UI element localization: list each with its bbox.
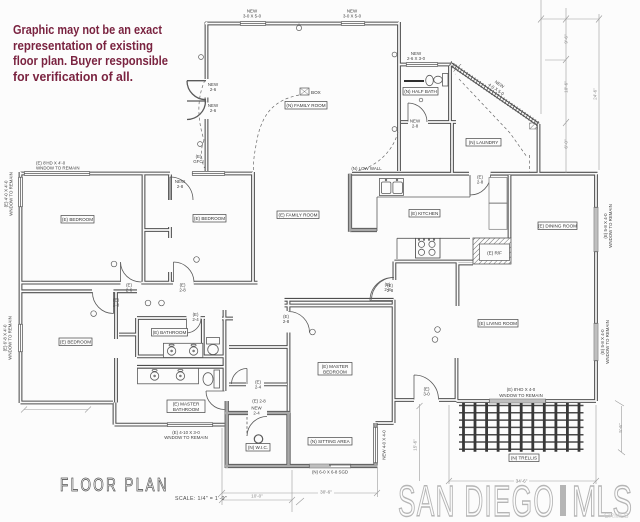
svg-text:2-6 X 3-0: 2-6 X 3-0 (407, 56, 426, 61)
svg-text:(E) MASTER: (E) MASTER (322, 364, 349, 369)
svg-text:(N) LAUNDRY: (N) LAUNDRY (469, 140, 499, 145)
svg-text:(E) 2-8: (E) 2-8 (252, 399, 266, 404)
svg-text:(E) FAMILY ROOM: (E) FAMILY ROOM (279, 213, 318, 218)
svg-text:for verification of all.: for verification of all. (13, 69, 133, 84)
svg-text:2-4: 2-4 (255, 385, 262, 390)
svg-text:Graphic may not be an exact: Graphic may not be an exact (13, 22, 163, 37)
svg-text:(E) MASTER: (E) MASTER (173, 401, 200, 406)
svg-text:2-4: 2-4 (253, 411, 260, 416)
svg-text:FLOOR PLAN: FLOOR PLAN (60, 475, 169, 495)
svg-text:GFCI: GFCI (193, 159, 204, 164)
svg-text:2-8: 2-8 (177, 184, 184, 189)
svg-text:2-8: 2-8 (283, 319, 290, 324)
svg-text:(E) LIVING ROOM: (E) LIVING ROOM (479, 321, 517, 326)
svg-text:WNDOW TO REMAIN: WNDOW TO REMAIN (36, 166, 80, 171)
svg-text:WNDOW TO REMAIN: WNDOW TO REMAIN (499, 393, 543, 398)
svg-text:5'-6": 5'-6" (618, 423, 623, 433)
svg-text:CRMLS: CRMLS (604, 513, 629, 520)
svg-text:WNDOW TO REMAIN: WNDOW TO REMAIN (8, 316, 13, 360)
svg-text:2-6: 2-6 (126, 288, 133, 293)
svg-text:WNDOW TO REMAIN: WNDOW TO REMAIN (164, 435, 208, 440)
svg-text:(E) BEDROOM: (E) BEDROOM (62, 217, 93, 222)
svg-text:(N) TRELLIS: (N) TRELLIS (511, 456, 537, 461)
svg-text:2-6: 2-6 (210, 87, 217, 92)
svg-text:9'-6": 9'-6" (564, 34, 569, 44)
svg-text:2-8: 2-8 (477, 180, 484, 185)
svg-text:3-0: 3-0 (423, 392, 430, 397)
svg-text:2-8: 2-8 (412, 124, 419, 129)
svg-text:(E) BATHROOM: (E) BATHROOM (153, 330, 187, 335)
svg-text:2-8: 2-8 (384, 287, 391, 292)
svg-text:24'-6": 24'-6" (593, 88, 598, 100)
svg-text:SAN DIEGO: SAN DIEGO (398, 477, 555, 522)
svg-text:3-0 X 5-0: 3-0 X 5-0 (243, 14, 262, 19)
svg-text:10'-0": 10'-0" (251, 494, 263, 499)
svg-text:(N) LOW WALL: (N) LOW WALL (351, 166, 382, 171)
svg-text:30'-6": 30'-6" (320, 490, 332, 495)
svg-text:2-4: 2-4 (192, 317, 199, 322)
svg-text:SCALE: 1/4" = 1'-0": SCALE: 1/4" = 1'-0" (175, 496, 227, 502)
svg-text:3-0 X 5-0: 3-0 X 5-0 (343, 14, 362, 19)
svg-text:representation of existing: representation of existing (13, 38, 153, 53)
svg-text:BATHROOM: BATHROOM (173, 407, 199, 412)
svg-text:(E) R/F: (E) R/F (487, 251, 502, 256)
svg-text:6'-0": 6'-0" (564, 139, 569, 149)
svg-text:WNDOW TO REMAIN: WNDOW TO REMAIN (608, 204, 613, 248)
svg-text:(N) W.I.C.: (N) W.I.C. (248, 445, 268, 450)
svg-text:(E) BEDROOM: (E) BEDROOM (60, 340, 91, 345)
svg-text:BEDROOM: BEDROOM (323, 369, 347, 374)
svg-text:(N) FAMILY ROOM: (N) FAMILY ROOM (286, 103, 325, 108)
svg-text:2-8: 2-8 (179, 288, 186, 293)
svg-text:10'-6": 10'-6" (564, 81, 569, 93)
svg-text:floor plan. Buyer responsible: floor plan. Buyer responsible (13, 53, 168, 68)
svg-text:2-8: 2-8 (113, 303, 120, 308)
svg-text:15'-6": 15'-6" (413, 439, 418, 451)
svg-text:(E) DINING ROOM: (E) DINING ROOM (538, 224, 577, 229)
svg-text:NEW 4-0 X 4-0: NEW 4-0 X 4-0 (382, 430, 387, 460)
svg-text:WNDOW TO REMAIN: WNDOW TO REMAIN (605, 320, 610, 364)
svg-text:WNDOW TO REMAIN: WNDOW TO REMAIN (9, 172, 14, 216)
svg-text:(N) 6-0 X 6-8 SGD: (N) 6-0 X 6-8 SGD (312, 470, 348, 475)
svg-text:(E) KITCHEN: (E) KITCHEN (411, 211, 439, 216)
svg-text:2-6: 2-6 (210, 108, 217, 113)
svg-text:(E) BEDROOM: (E) BEDROOM (194, 216, 225, 221)
svg-text:(E) 8'HD X 4-0: (E) 8'HD X 4-0 (507, 387, 536, 392)
svg-text:(N) SITTING AREA: (N) SITTING AREA (310, 439, 350, 444)
svg-text:BOX: BOX (311, 90, 321, 95)
svg-text:(N) HALF BATH: (N) HALF BATH (404, 89, 437, 94)
